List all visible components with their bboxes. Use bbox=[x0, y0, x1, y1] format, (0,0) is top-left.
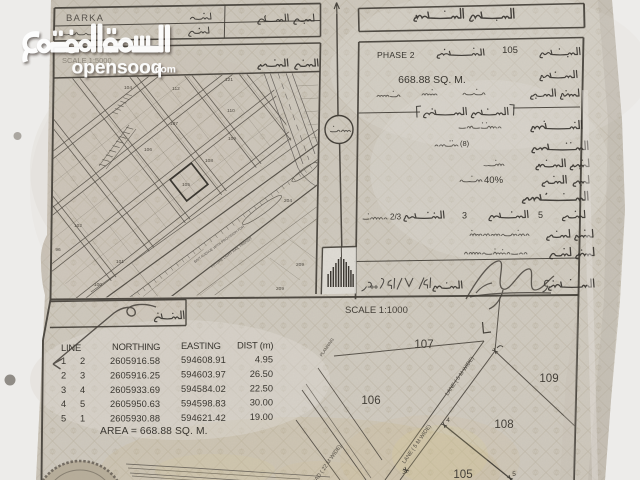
svg-text:opensooq: opensooq bbox=[72, 57, 163, 79]
svg-text:.com: .com bbox=[152, 65, 176, 76]
